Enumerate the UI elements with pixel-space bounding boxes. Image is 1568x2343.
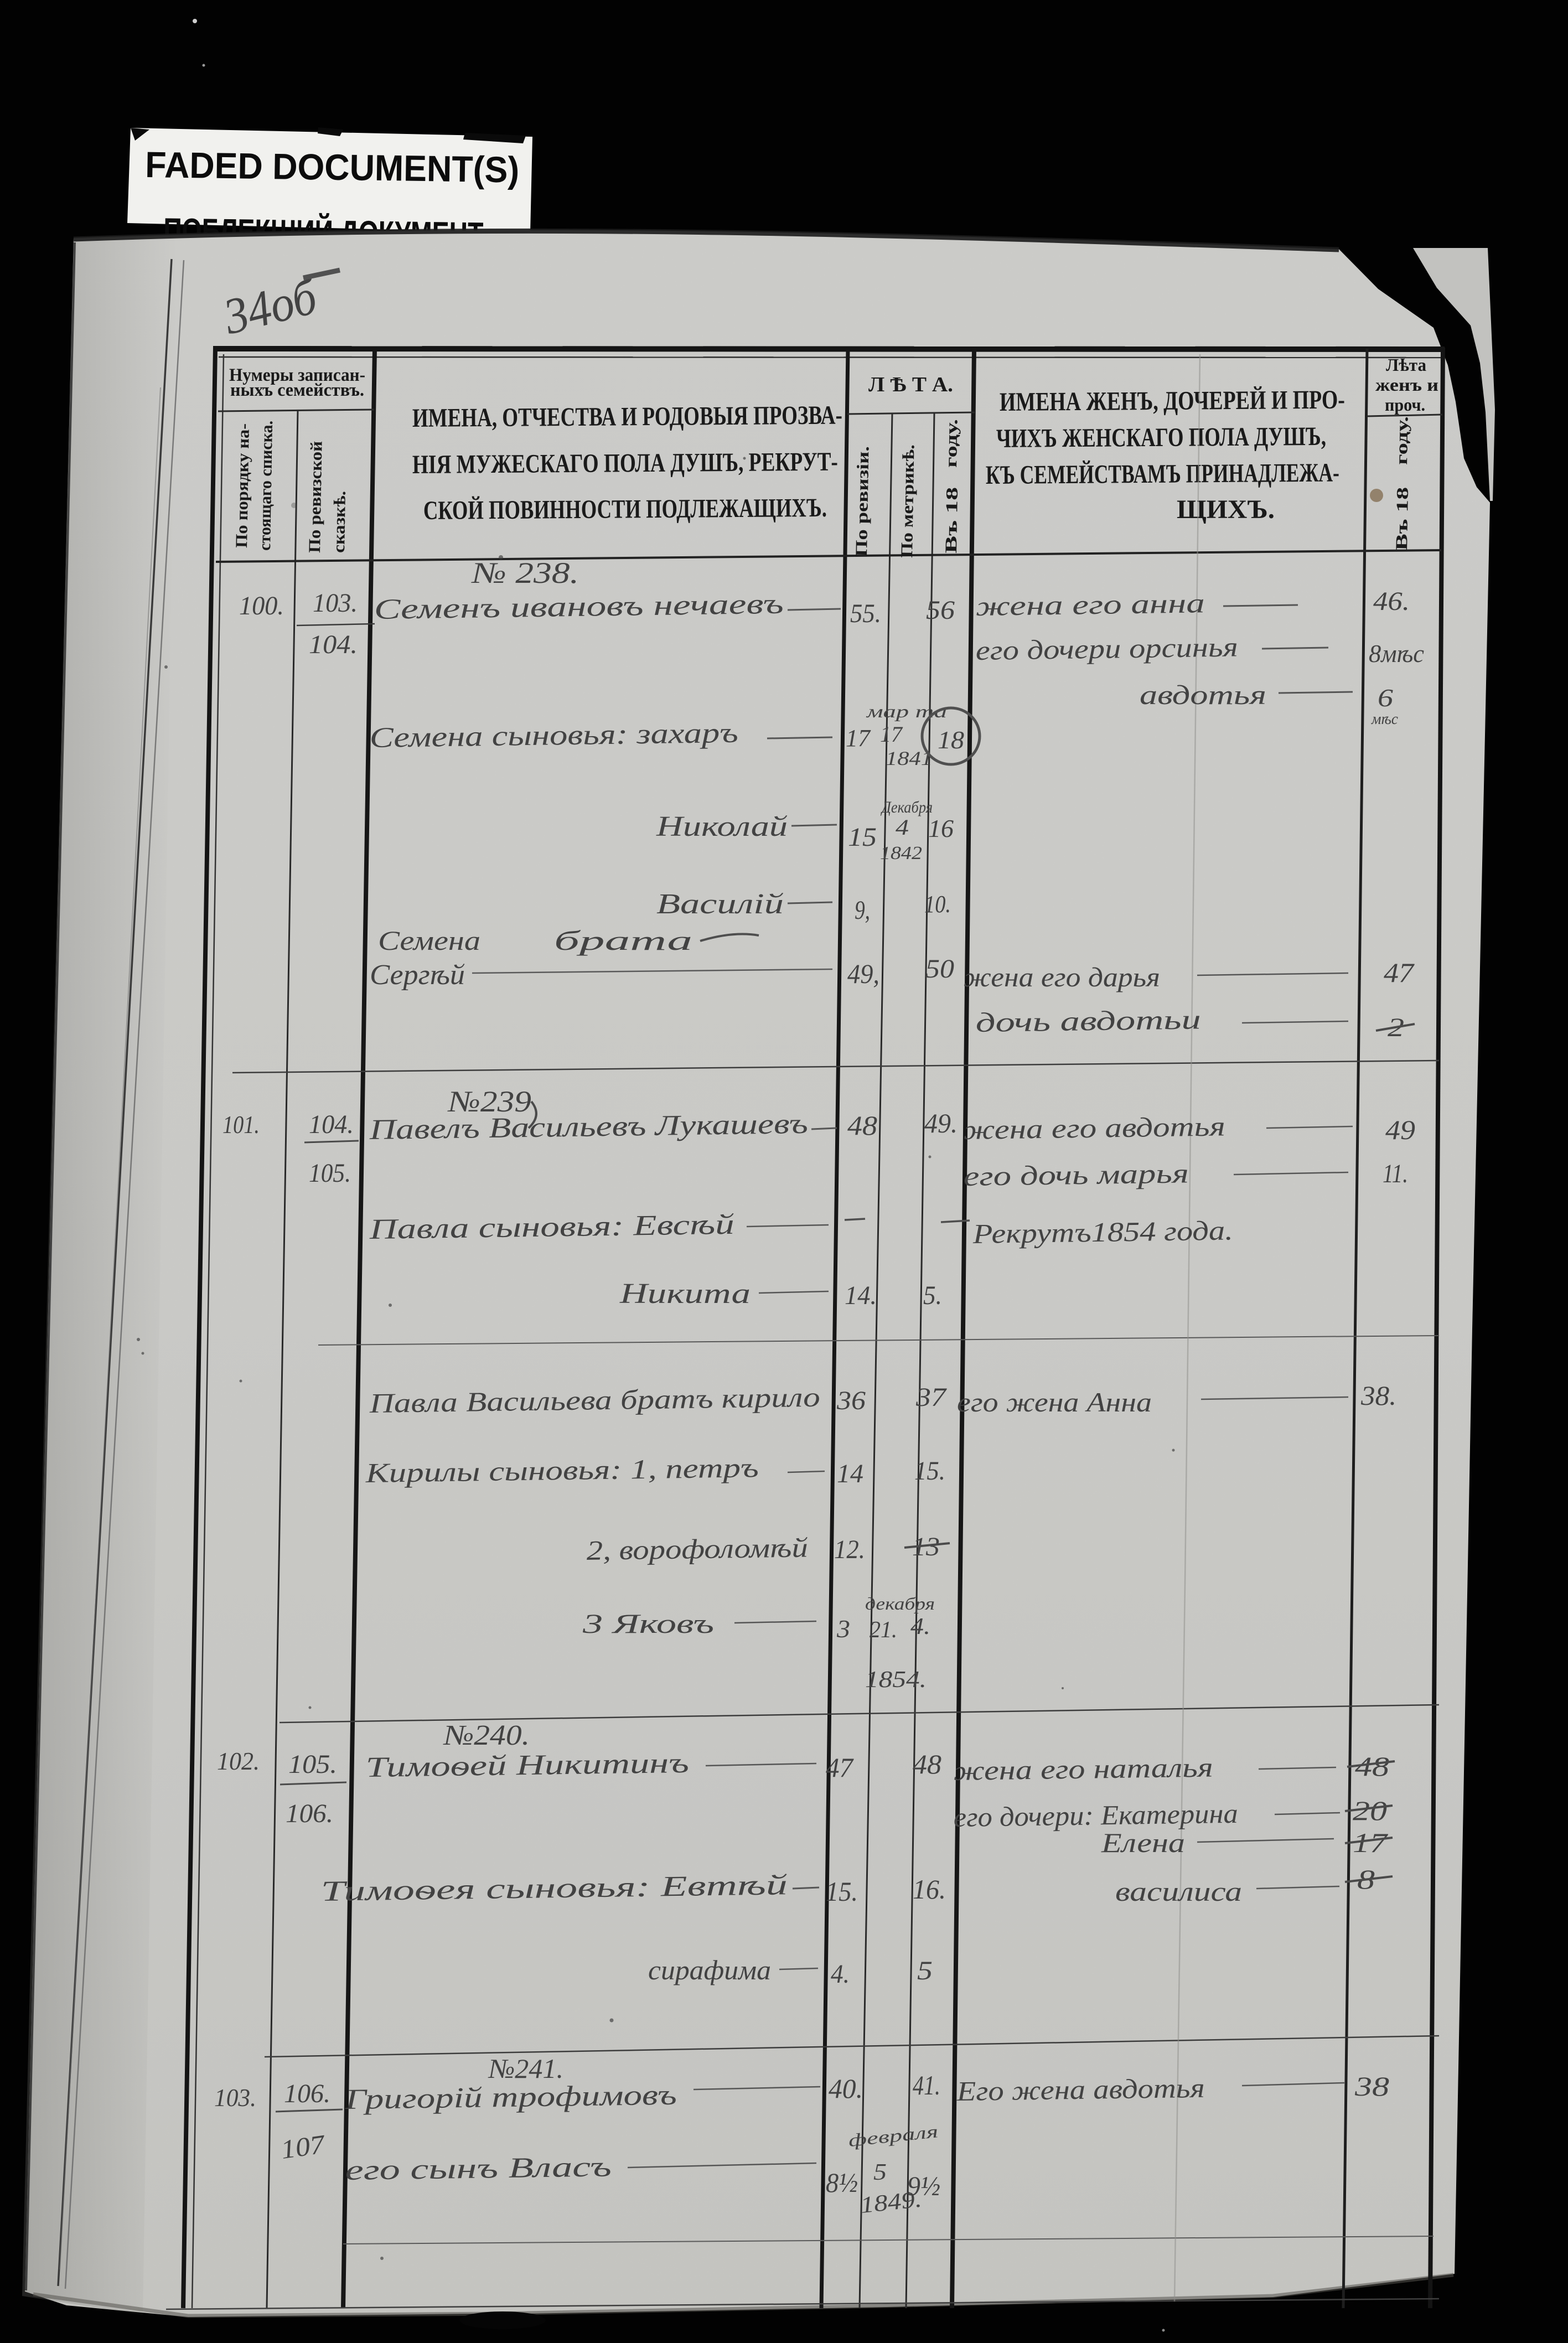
svg-text:Павла сыновья: Евсѣй: Павла сыновья: Евсѣй (369, 1209, 734, 1245)
svg-text:Николай: Николай (656, 811, 788, 842)
svg-text:107: 107 (279, 2129, 328, 2165)
svg-text:Семена: Семена (378, 925, 480, 956)
svg-text:37: 37 (915, 1383, 947, 1412)
svg-text:Павла Васильева братъ кирило: Павла Васильева братъ кирило (369, 1382, 820, 1419)
svg-text:стоящаго списка.: стоящаго списка. (256, 421, 276, 551)
svg-text:Въ 18: Въ 18 (1393, 487, 1412, 551)
svg-text:46.: 46. (1373, 587, 1410, 616)
svg-text:Павелъ Васильевъ Лукашевъ: Павелъ Васильевъ Лукашевъ (369, 1108, 808, 1146)
svg-text:104.: 104. (309, 630, 358, 659)
svg-text:9½: 9½ (907, 2170, 940, 2201)
svg-text:КЪ СЕМЕЙСТВАМЪ ПРИНАДЛЕЖА-: КЪ СЕМЕЙСТВАМЪ ПРИНАДЛЕЖА- (986, 458, 1339, 490)
svg-text:его сынъ Власъ: его сынъ Власъ (345, 2151, 612, 2186)
svg-text:ИМЕНА, ОТЧЕСТВА И РОДОВЫЯ ПРОЗ: ИМЕНА, ОТЧЕСТВА И РОДОВЫЯ ПРОЗВА- (412, 401, 842, 433)
svg-text:сказкѣ.: сказкѣ. (330, 491, 349, 554)
svg-text:101.: 101. (222, 1110, 260, 1139)
svg-text:дочь авдотьи: дочь авдотьи (975, 1004, 1201, 1038)
svg-text:8½: 8½ (826, 2167, 858, 2198)
svg-text:48: 48 (913, 1749, 941, 1780)
svg-text:8мѣс: 8мѣс (1369, 639, 1424, 668)
svg-text:его дочь марья: его дочь марья (963, 1157, 1189, 1192)
svg-text:4.: 4. (910, 1614, 930, 1639)
svg-text:его дочери орсинья: его дочери орсинья (975, 631, 1238, 666)
svg-text:жена его авдотья: жена его авдотья (963, 1110, 1225, 1145)
svg-text:6: 6 (1378, 684, 1393, 712)
svg-text:106.: 106. (284, 2079, 330, 2108)
svg-text:ЧИХЪ ЖЕНСКАГО ПОЛА ДУШЪ,: ЧИХЪ ЖЕНСКАГО ПОЛА ДУШЪ, (996, 422, 1326, 453)
svg-text:По порядку на-: По порядку на- (232, 423, 253, 549)
svg-text:№ 238.: № 238. (471, 556, 579, 589)
svg-text:Тимоѳея сыновья: Евтѣй: Тимоѳея сыновья: Евтѣй (320, 1869, 788, 1907)
svg-text:104.: 104. (309, 1110, 354, 1139)
svg-text:декабря: декабря (865, 1594, 935, 1613)
svg-text:56: 56 (926, 596, 955, 625)
svg-text:103.: 103. (313, 588, 358, 618)
svg-text:ЩИХЪ.: ЩИХЪ. (1177, 495, 1275, 524)
svg-text:49.: 49. (924, 1108, 958, 1139)
svg-text:12.: 12. (834, 1535, 865, 1564)
svg-text:21.: 21. (870, 1617, 897, 1643)
svg-text:НІЯ МУЖЕСКАГО ПОЛА ДУШЪ, РЕКРУ: НІЯ МУЖЕСКАГО ПОЛА ДУШЪ, РЕКРУТ- (412, 447, 838, 479)
svg-text:105.: 105. (288, 1750, 337, 1779)
svg-text:авдотья: авдотья (1140, 679, 1266, 710)
svg-text:Василій: Василій (656, 888, 784, 920)
svg-text:Тимоѳей Никитинъ: Тимоѳей Никитинъ (365, 1747, 689, 1783)
svg-text:5: 5 (873, 2160, 887, 2185)
svg-text:16: 16 (928, 814, 954, 842)
svg-text:Въ 18: Въ 18 (942, 487, 961, 554)
svg-text:1842: 1842 (880, 843, 922, 863)
svg-text:5.: 5. (923, 1281, 942, 1310)
svg-text:По ревизіи.: По ревизіи. (852, 446, 872, 557)
svg-text:100.: 100. (239, 591, 284, 620)
svg-text:его дочери: Екатерина: его дочери: Екатерина (953, 1798, 1238, 1833)
svg-text:17: 17 (880, 722, 903, 747)
svg-text:10.: 10. (924, 891, 951, 918)
svg-text:3 Яковъ: 3 Яковъ (582, 1608, 714, 1639)
svg-text:4: 4 (896, 815, 909, 840)
svg-text:50: 50 (925, 954, 954, 984)
svg-text:47: 47 (826, 1752, 854, 1783)
svg-text:47: 47 (1384, 957, 1415, 988)
svg-text:Семенъ ивановъ нечаевъ: Семенъ ивановъ нечаевъ (374, 588, 784, 625)
svg-text:жена его наталья: жена его наталья (953, 1751, 1213, 1786)
svg-text:14: 14 (837, 1459, 863, 1488)
svg-text:9,: 9, (855, 896, 870, 925)
svg-text:49: 49 (1385, 1114, 1415, 1145)
svg-text:году.: году. (1393, 416, 1412, 466)
svg-text:103.: 103. (214, 2083, 256, 2112)
svg-text:Никита: Никита (619, 1278, 751, 1310)
svg-text:сирафима: сирафима (648, 1954, 771, 1985)
svg-text:18: 18 (938, 726, 964, 754)
svg-text:49,: 49, (847, 958, 879, 989)
svg-text:брата: брата (554, 925, 692, 956)
svg-text:ныхъ семействъ.: ныхъ семействъ. (230, 380, 364, 400)
svg-text:СКОЙ ПОВИННОСТИ ПОДЛЕЖАЩИХЪ.: СКОЙ ПОВИННОСТИ ПОДЛЕЖАЩИХЪ. (423, 493, 827, 525)
svg-text:ИМЕНА ЖЕНЪ, ДОЧЕРЕЙ И ПРО-: ИМЕНА ЖЕНЪ, ДОЧЕРЕЙ И ПРО- (1000, 385, 1345, 417)
svg-text:жена его анна: жена его анна (975, 587, 1205, 622)
svg-text:Л Ѣ Т А.: Л Ѣ Т А. (868, 373, 953, 396)
svg-text:Елена: Елена (1101, 1827, 1185, 1858)
svg-text:36: 36 (836, 1386, 866, 1415)
svg-text:4.: 4. (831, 1959, 850, 1989)
svg-text:5: 5 (917, 1956, 933, 1985)
svg-text:102.: 102. (217, 1747, 260, 1775)
svg-text:женъ и: женъ и (1375, 375, 1438, 395)
svg-text:14.: 14. (845, 1281, 877, 1310)
svg-text:Рекрутъ1854 года.: Рекрутъ1854 года. (972, 1214, 1233, 1249)
svg-text:38: 38 (1354, 2071, 1389, 2102)
svg-text:году.: году. (942, 419, 961, 468)
svg-text:Лѣта: Лѣта (1386, 355, 1426, 375)
svg-text:106.: 106. (286, 1799, 333, 1828)
svg-text:16.: 16. (913, 1874, 946, 1905)
svg-text:15.: 15. (826, 1876, 858, 1907)
svg-text:40.: 40. (829, 2073, 863, 2104)
svg-text:Григорій трофимовъ: Григорій трофимовъ (344, 2080, 677, 2116)
svg-text:мѣс: мѣс (1371, 711, 1399, 728)
svg-text:Сергѣй: Сергѣй (370, 959, 465, 991)
svg-text:FADED DOCUMENT(S): FADED DOCUMENT(S) (145, 144, 520, 190)
svg-text:55.: 55. (850, 599, 881, 628)
svg-text:48: 48 (847, 1110, 877, 1141)
svg-text:15.: 15. (914, 1456, 945, 1486)
svg-text:По метрикѣ.: По метрикѣ. (898, 444, 918, 558)
svg-text:41.: 41. (913, 2070, 940, 2101)
svg-text:№240.: №240. (443, 1720, 530, 1751)
svg-text:По ревизской: По ревизской (306, 441, 326, 554)
svg-text:Его жена авдотья: Его жена авдотья (956, 2072, 1205, 2107)
svg-text:проч.: проч. (1385, 395, 1425, 415)
svg-text:жена его дарья: жена его дарья (964, 961, 1160, 992)
svg-text:3: 3 (836, 1615, 850, 1643)
svg-text:11.: 11. (1383, 1159, 1408, 1188)
svg-text:его жена Анна: его жена Анна (957, 1387, 1152, 1418)
svg-text:Декабря: Декабря (880, 798, 933, 816)
svg-text:василиса: василиса (1115, 1876, 1242, 1907)
svg-text:38.: 38. (1360, 1380, 1396, 1411)
svg-text:Семена сыновья: захаръ: Семена сыновья: захаръ (369, 717, 738, 754)
svg-text:105.: 105. (309, 1158, 351, 1188)
svg-text:№241.: №241. (488, 2053, 563, 2084)
svg-text:15: 15 (848, 823, 877, 852)
svg-text:2, ворофоломѣй: 2, ворофоломѣй (586, 1532, 808, 1566)
svg-text:Кирилы сыновья: 1, петръ: Кирилы сыновья: 1, петръ (365, 1452, 759, 1488)
svg-text:17: 17 (846, 725, 871, 752)
svg-text:1854.: 1854. (865, 1667, 927, 1693)
